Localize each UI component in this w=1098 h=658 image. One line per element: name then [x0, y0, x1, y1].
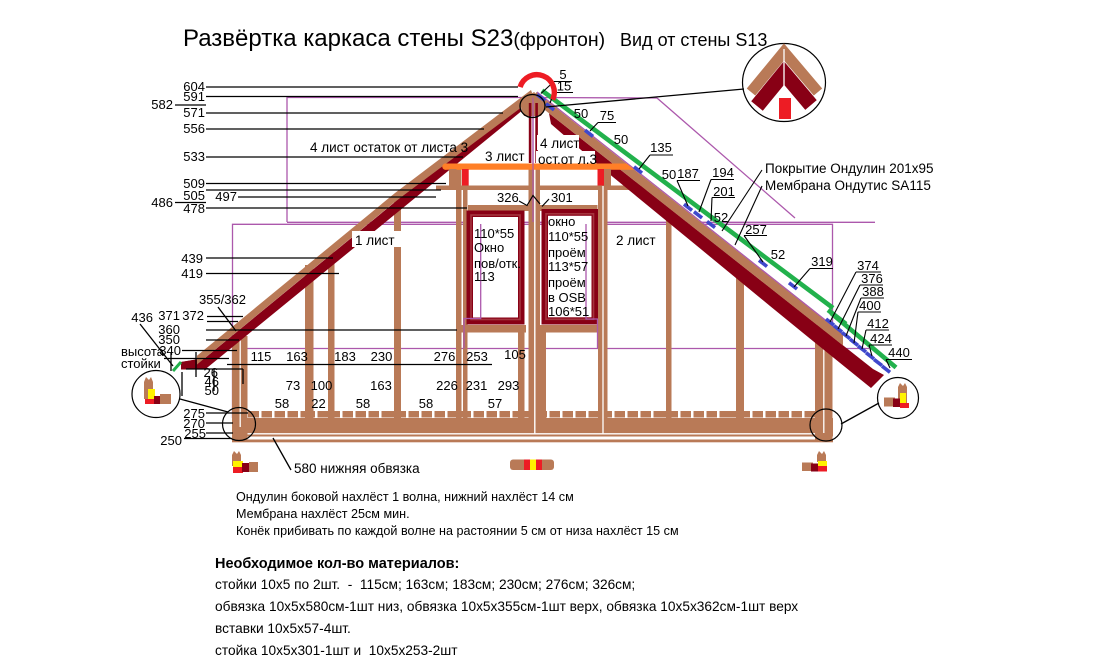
svg-text:проём: проём	[548, 245, 586, 260]
svg-text:Ондулин боковой нахлёст 1 волн: Ондулин боковой нахлёст 1 волна, нижний …	[236, 490, 574, 504]
svg-text:4 лист: 4 лист	[540, 136, 580, 151]
svg-text:105: 105	[504, 347, 526, 362]
svg-text:326: 326	[497, 190, 519, 205]
svg-text:201: 201	[713, 184, 735, 199]
svg-text:319: 319	[811, 254, 833, 269]
svg-text:486: 486	[151, 195, 173, 210]
svg-text:276: 276	[434, 349, 456, 364]
svg-text:проём: проём	[548, 275, 586, 290]
svg-text:2 лист: 2 лист	[616, 233, 656, 248]
svg-text:75: 75	[600, 108, 614, 123]
svg-text:591: 591	[183, 89, 205, 104]
svg-text:113: 113	[474, 269, 495, 284]
svg-text:Окно: Окно	[474, 240, 504, 255]
svg-text:58: 58	[419, 396, 433, 411]
svg-text:50: 50	[574, 106, 588, 121]
svg-text:106*51: 106*51	[548, 304, 589, 319]
svg-text:187: 187	[677, 166, 699, 181]
svg-text:582: 582	[151, 97, 173, 112]
svg-text:Покрытие Ондулин 201х95: Покрытие Ондулин 201х95	[765, 161, 934, 176]
svg-text:250: 250	[160, 433, 182, 448]
svg-text:ост.от л.3: ост.от л.3	[538, 152, 597, 167]
svg-text:окно: окно	[548, 214, 575, 229]
svg-text:50: 50	[205, 383, 219, 398]
svg-text:100: 100	[311, 378, 333, 393]
svg-text:355/362: 355/362	[199, 292, 246, 307]
svg-text:73: 73	[286, 378, 300, 393]
svg-text:571: 571	[183, 105, 205, 120]
svg-text:372: 372	[182, 308, 204, 323]
svg-text:533: 533	[183, 149, 205, 164]
svg-text:57: 57	[488, 396, 502, 411]
svg-text:440: 440	[888, 345, 910, 360]
svg-text:231: 231	[466, 378, 488, 393]
svg-text:стойки: стойки	[121, 356, 161, 371]
svg-text:58: 58	[275, 396, 289, 411]
svg-text:255: 255	[184, 426, 206, 441]
svg-text:412: 412	[867, 316, 889, 331]
svg-text:163: 163	[370, 378, 392, 393]
svg-text:3 лист: 3 лист	[485, 149, 525, 164]
svg-text:стойки 10х5 по 2шт. - 115см;: стойки 10х5 по 2шт. - 115см; 163см; 183с…	[215, 577, 635, 592]
svg-text:Конёк прибивать по каждой волн: Конёк прибивать по каждой волне на расто…	[236, 524, 679, 538]
svg-text:Развёртка каркаса стены S23(фр: Развёртка каркаса стены S23(фронтон)	[183, 25, 605, 52]
svg-text:Вид от стены S13: Вид от стены S13	[620, 30, 767, 50]
svg-text:1 лист: 1 лист	[355, 233, 395, 248]
svg-text:стойка 10х5х301-1шт и 10х5х25: стойка 10х5х301-1шт и 10х5х253-2шт	[215, 643, 458, 658]
svg-text:230: 230	[371, 349, 393, 364]
svg-text:4 лист остаток от листа 3: 4 лист остаток от листа 3	[310, 140, 468, 155]
svg-text:Мембрана Ондутис SA115: Мембрана Ондутис SA115	[765, 178, 931, 193]
svg-text:253: 253	[466, 349, 488, 364]
svg-text:22: 22	[311, 396, 325, 411]
svg-text:163: 163	[286, 349, 308, 364]
svg-text:50: 50	[614, 132, 628, 147]
svg-text:110*55: 110*55	[548, 229, 588, 244]
svg-text:556: 556	[183, 121, 205, 136]
svg-text:в OSB: в OSB	[548, 290, 586, 305]
svg-text:15: 15	[557, 79, 571, 94]
svg-text:439: 439	[181, 251, 203, 266]
svg-text:115: 115	[251, 349, 272, 364]
svg-text:580 нижняя обвязка: 580 нижняя обвязка	[294, 461, 420, 476]
svg-text:419: 419	[181, 266, 203, 281]
svg-text:226: 226	[436, 378, 458, 393]
svg-text:183: 183	[334, 349, 356, 364]
svg-text:58: 58	[356, 396, 370, 411]
svg-text:194: 194	[712, 165, 734, 180]
svg-text:301: 301	[551, 190, 573, 205]
svg-text:Необходимое кол-во материалов:: Необходимое кол-во материалов:	[215, 556, 459, 572]
svg-text:113*57: 113*57	[548, 259, 588, 274]
svg-text:497: 497	[215, 189, 237, 204]
svg-text:293: 293	[498, 378, 520, 393]
svg-text:52: 52	[771, 247, 785, 262]
svg-text:обвязка 10х5х580см-1шт низ, об: обвязка 10х5х580см-1шт низ, обвязка 10х5…	[215, 599, 798, 614]
svg-text:436: 436	[131, 310, 153, 325]
svg-text:478: 478	[183, 201, 205, 216]
svg-text:388: 388	[862, 284, 884, 299]
svg-text:424: 424	[870, 331, 892, 346]
svg-text:400: 400	[859, 298, 881, 313]
svg-text:50: 50	[662, 167, 676, 182]
svg-text:Мембрана нахлёст 25см мин.: Мембрана нахлёст 25см мин.	[236, 507, 410, 521]
svg-text:371: 371	[158, 308, 180, 323]
svg-text:110*55: 110*55	[474, 226, 514, 241]
svg-text:257: 257	[745, 222, 767, 237]
svg-text:вставки 10х5х57-4шт.: вставки 10х5х57-4шт.	[215, 621, 351, 636]
svg-text:52: 52	[714, 210, 728, 225]
svg-text:135: 135	[650, 140, 672, 155]
